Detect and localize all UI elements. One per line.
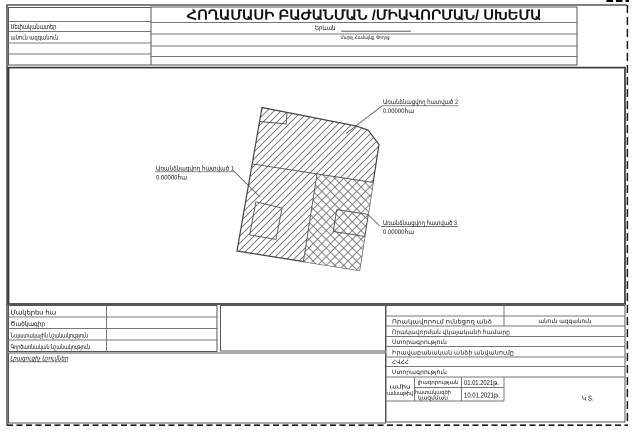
svg-text:Առանձնացվող հատված 1: Առանձնացվող հատված 1 (156, 164, 234, 172)
svg-text:Ստորագրություն: Ստորագրություն (392, 369, 447, 376)
svg-text:ՀՈՂԱՄԱՍԻ ԲԱԺԱՆՄԱՆ /ՄԻԱՎՈՐՄԱՆ/: ՀՈՂԱՄԱՍԻ ԲԱԺԱՆՄԱՆ /ՄԻԱՎՈՐՄԱՆ/ ՍԽԵՄԱ (187, 8, 542, 23)
svg-text:ամիս: ամիս (390, 384, 411, 390)
svg-text:ՀՎՀՀ: ՀՎՀՀ (392, 359, 409, 366)
svg-text:Նպատակային նշանակություն: Նպատակային նշանակություն (11, 332, 89, 339)
svg-text:0.00000հա: 0.00000հա (383, 228, 415, 236)
svg-text:Սեփականատեր: Սեփականատեր (11, 23, 57, 31)
svg-text:կազմման: կազմման (418, 395, 449, 402)
svg-text:01.01.2021թ.: 01.01.2021թ. (464, 380, 499, 387)
svg-text:լիազորության: լիազորության (418, 379, 460, 386)
svg-text:Իրավաբանական անձի անվանումը: Իրավաբանական անձի անվանումը (392, 349, 514, 356)
svg-text:անուն ազգանուն: անուն ազգանուն (11, 34, 59, 42)
svg-text:Որակավորում ունեցող անձ: Որակավորում ունեցող անձ (392, 319, 492, 326)
svg-text:0.00000հա: 0.00000հա (156, 174, 188, 182)
svg-text:Ծածկագիր: Ծածկագիր (11, 321, 46, 328)
svg-text:Որակավորման վկայականի համարը: Որակավորման վկայականի համարը (392, 329, 510, 336)
svg-text:անուն ազգանուն: անուն ազգանուն (539, 318, 592, 325)
svg-text:0.00000հա: 0.00000հա (383, 107, 415, 115)
svg-text:ամսաթիվ: ամսաթիվ (387, 391, 414, 397)
svg-text:10.01.2021թ.: 10.01.2021թ. (464, 393, 500, 400)
svg-text:Գործառնական նշանակություն: Գործառնական նշանակություն (11, 344, 91, 351)
svg-text:Մակերես հա: Մակերես հա (11, 310, 57, 317)
svg-text:Մարզ, Համայնք, Փողոց: Մարզ, Համայնք, Փողոց (341, 35, 390, 41)
svg-text:Կ.Տ.: Կ.Տ. (582, 396, 594, 403)
svg-text:Ստորագրություն: Ստորագրություն (392, 339, 447, 346)
svg-text:Երևան: Երևան (315, 25, 336, 32)
svg-text:Առանձնացվող հատված 3: Առանձնացվող հատված 3 (383, 219, 457, 227)
svg-text:Առանձնացվող հատված 2: Առանձնացվող հատված 2 (383, 98, 458, 106)
svg-text:Լրացուցիչ նշումներ: Լրացուցիչ նշումներ (10, 355, 69, 362)
